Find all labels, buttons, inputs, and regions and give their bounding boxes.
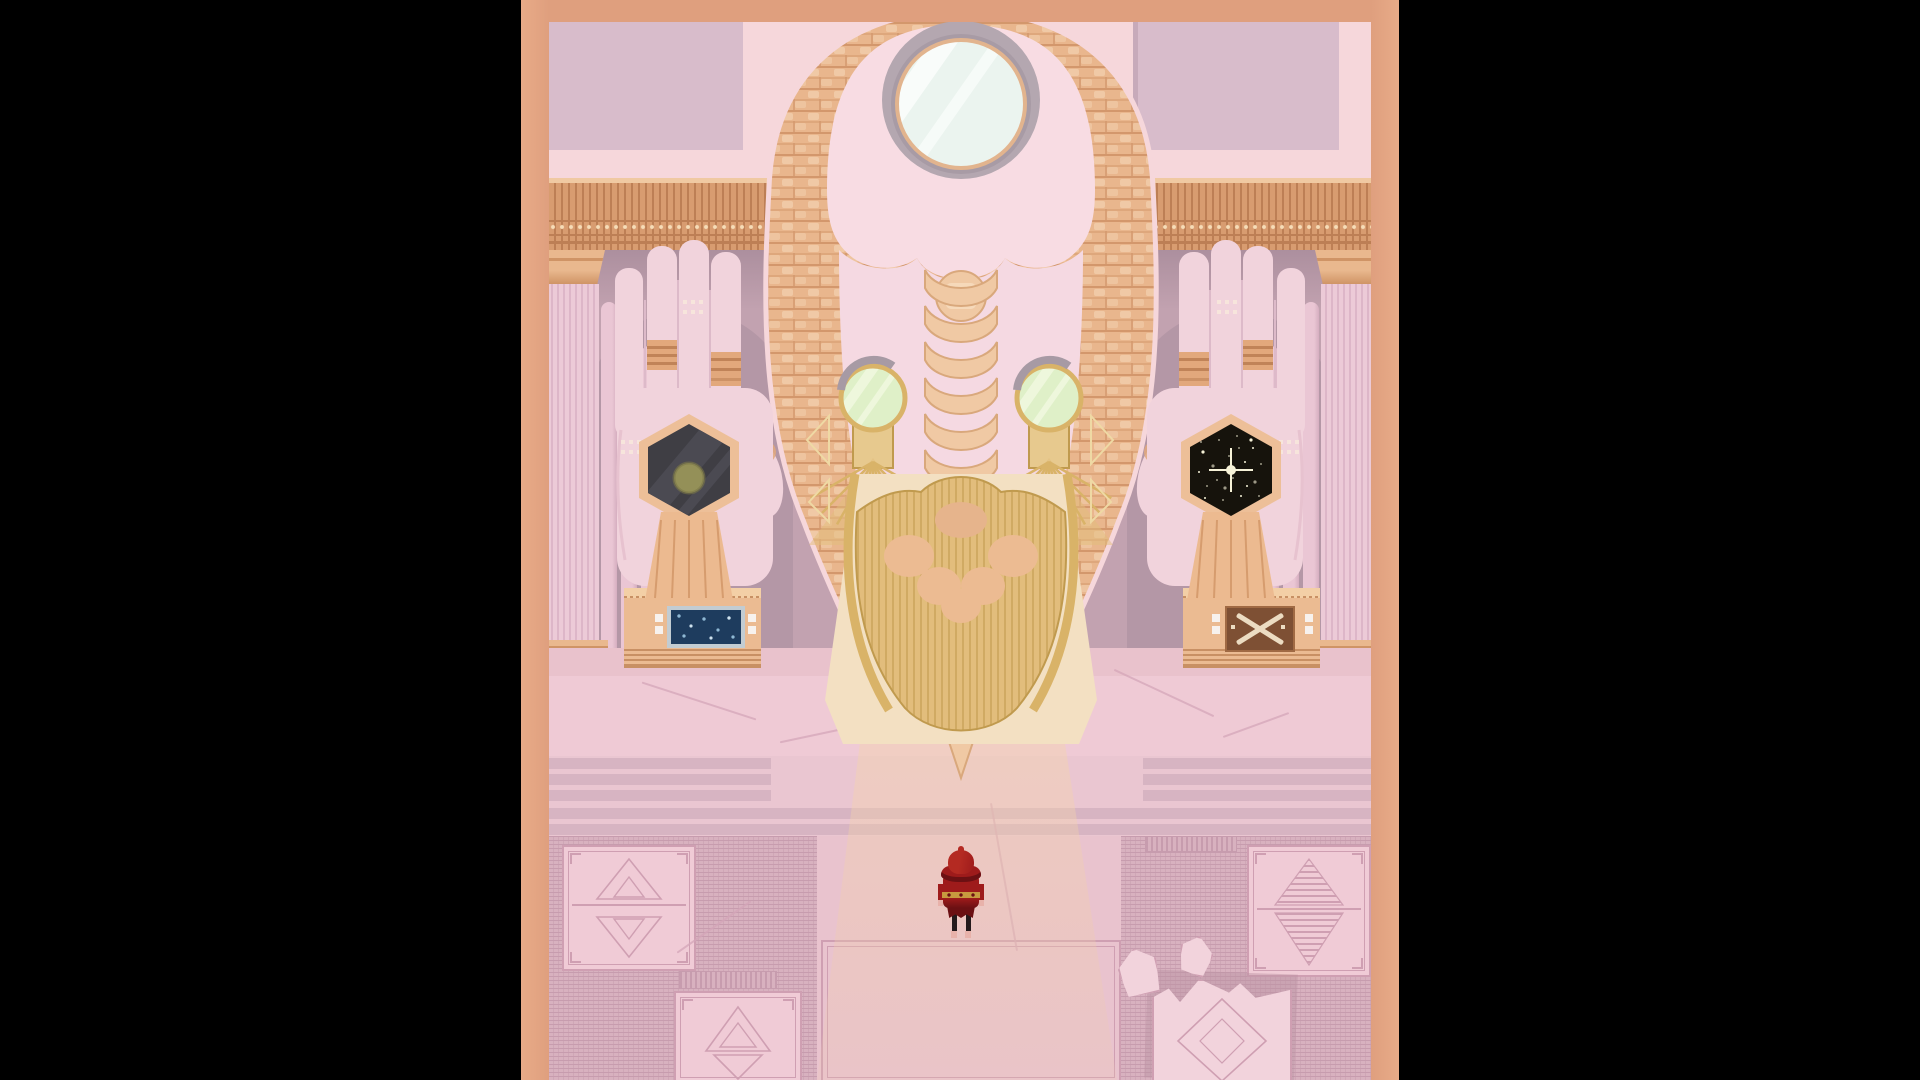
pillar-capital-left xyxy=(541,250,605,284)
pedestal-button[interactable] xyxy=(1212,626,1220,634)
triangle-motif xyxy=(564,847,694,969)
pedestal-button[interactable] xyxy=(748,614,756,622)
pedestal-button[interactable] xyxy=(1305,614,1313,622)
step-band xyxy=(549,790,771,801)
player-hand xyxy=(979,900,984,906)
panel-dot xyxy=(1231,625,1235,629)
floor-panel-spiral xyxy=(674,991,802,1080)
screen-display xyxy=(671,610,741,644)
player-hood xyxy=(948,850,974,874)
frame-border-top xyxy=(549,0,1371,22)
striped-diamond-motif xyxy=(1249,847,1369,975)
floor-panel-diamond xyxy=(1247,845,1371,977)
floor-crack xyxy=(780,723,868,744)
pedestal-button[interactable] xyxy=(1212,614,1220,622)
pedestal-left xyxy=(624,588,761,668)
pillar-left xyxy=(547,284,599,640)
step-band xyxy=(1143,774,1371,785)
player-foot xyxy=(951,931,957,938)
stairs xyxy=(549,756,1371,836)
game-screen xyxy=(0,0,1920,1080)
wall-panel-left xyxy=(525,8,743,150)
comb-tile-band xyxy=(1145,836,1237,852)
step-band-full xyxy=(549,824,1371,835)
player-belt xyxy=(942,892,980,898)
frame-border-left xyxy=(521,0,549,1080)
comb-tile-band xyxy=(679,971,777,989)
step-band xyxy=(549,774,771,785)
pedestal-button[interactable] xyxy=(655,626,663,634)
pedestal-right xyxy=(1183,588,1320,668)
step-band xyxy=(1143,790,1371,801)
pillar-capital-right xyxy=(1315,250,1379,284)
entablature-frieze xyxy=(549,178,1371,250)
crossed-panel[interactable] xyxy=(1225,606,1295,652)
upper-platform xyxy=(549,676,1371,756)
walkway-panel xyxy=(821,940,1121,1080)
wall-panel-right xyxy=(1133,8,1339,150)
pillar-right xyxy=(1321,284,1373,640)
floor-crack xyxy=(1114,669,1215,717)
background-spire xyxy=(601,302,617,676)
floor-crack xyxy=(642,682,757,721)
step-band xyxy=(549,758,771,769)
slab-diamond-motif xyxy=(1154,981,1290,1080)
panel-dot xyxy=(1281,625,1285,629)
spiral-motif xyxy=(676,993,800,1080)
frame-border-right xyxy=(1371,0,1399,1080)
pedestal-button[interactable] xyxy=(748,626,756,634)
game-viewport[interactable] xyxy=(521,0,1399,1080)
player-foot xyxy=(965,931,971,938)
step-band-full xyxy=(549,808,1371,819)
pedestal-button[interactable] xyxy=(1305,626,1313,634)
pedestal-button[interactable] xyxy=(655,614,663,622)
floor-crack xyxy=(1223,712,1289,738)
star-chart-screen[interactable] xyxy=(667,606,745,648)
player-character[interactable] xyxy=(939,850,983,938)
step-band xyxy=(1143,758,1371,769)
